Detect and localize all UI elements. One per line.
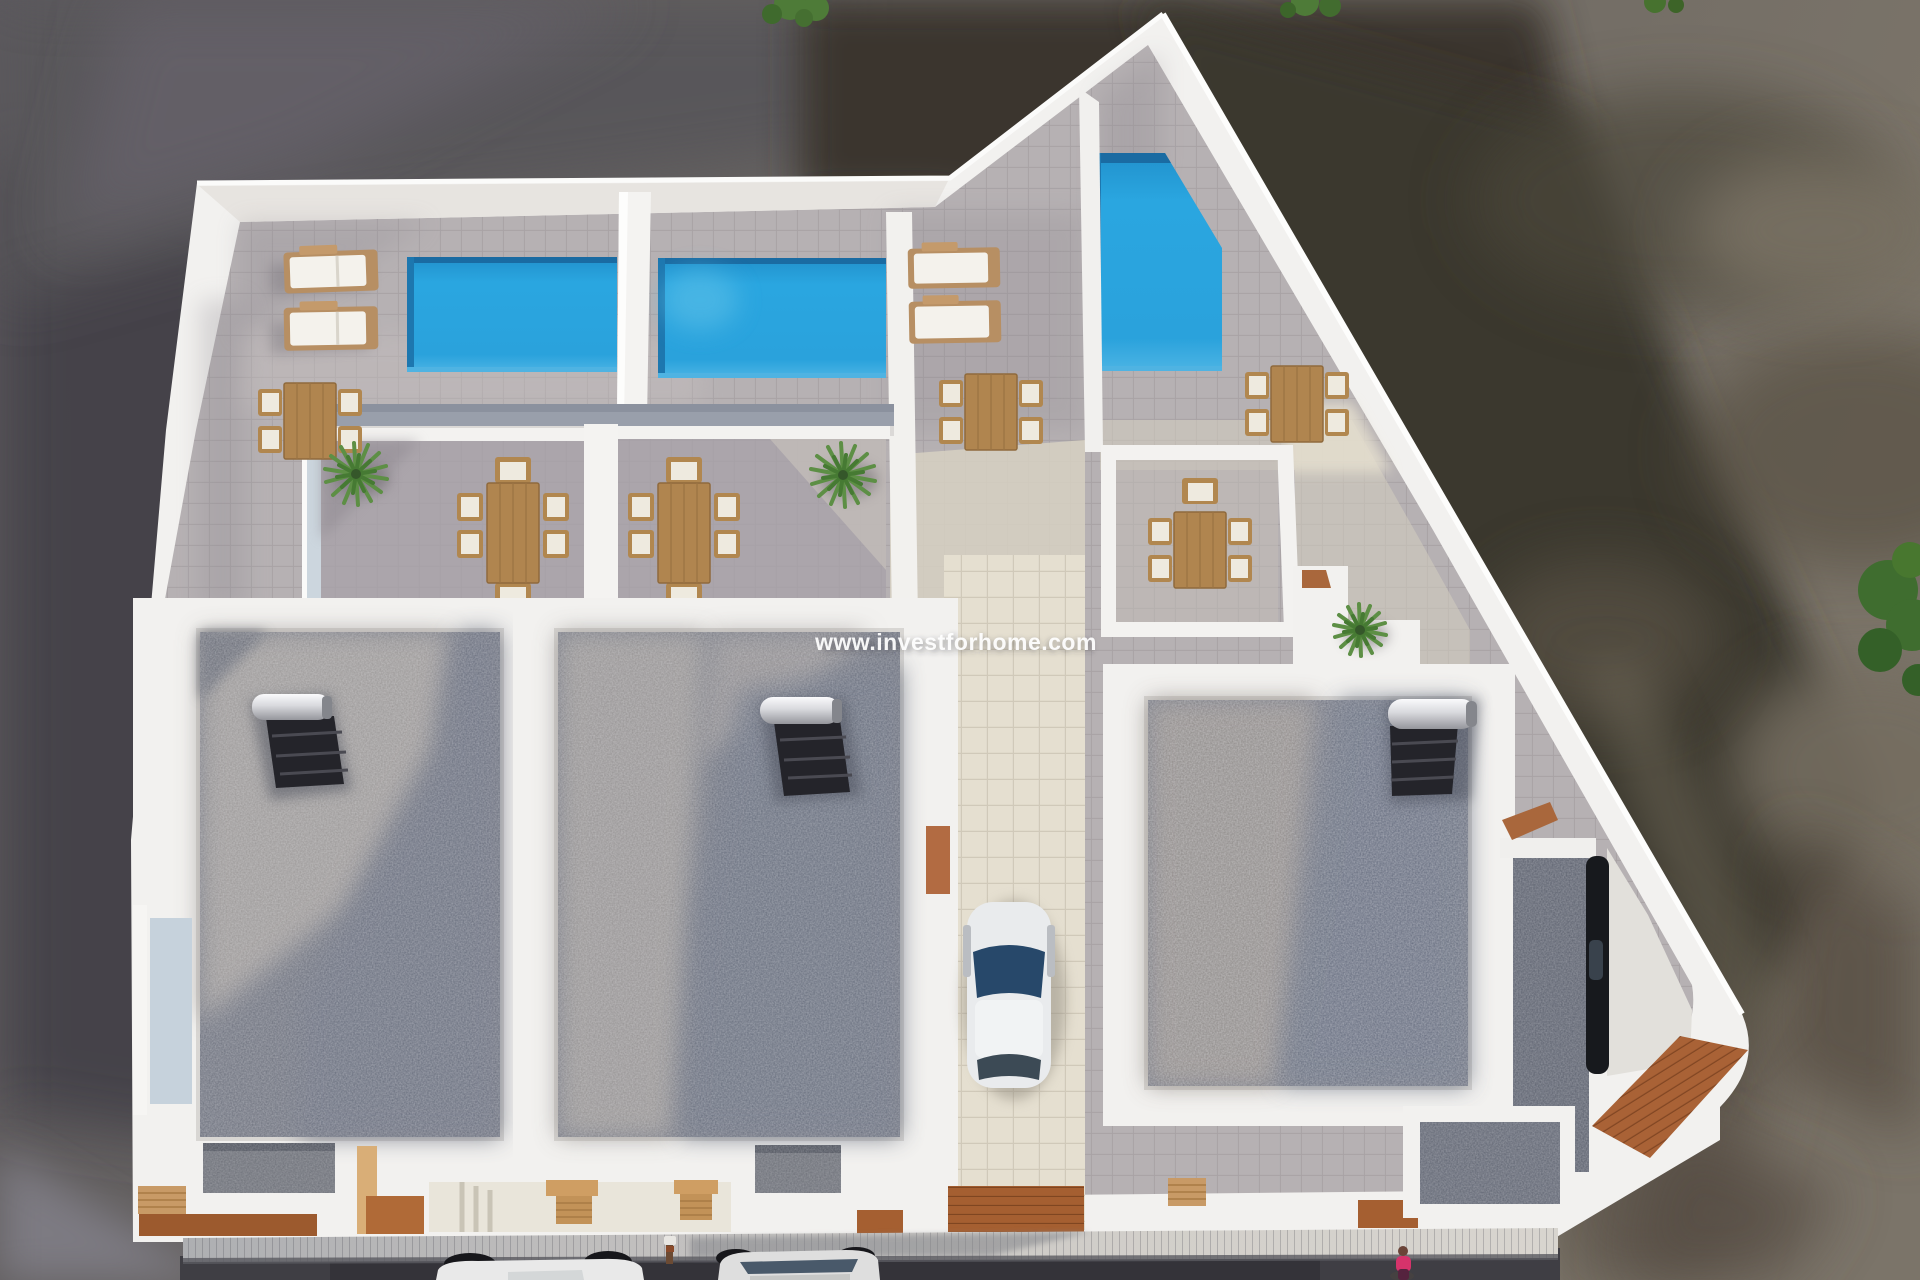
svg-text:www.investforhome.com: www.investforhome.com [814,629,1097,655]
